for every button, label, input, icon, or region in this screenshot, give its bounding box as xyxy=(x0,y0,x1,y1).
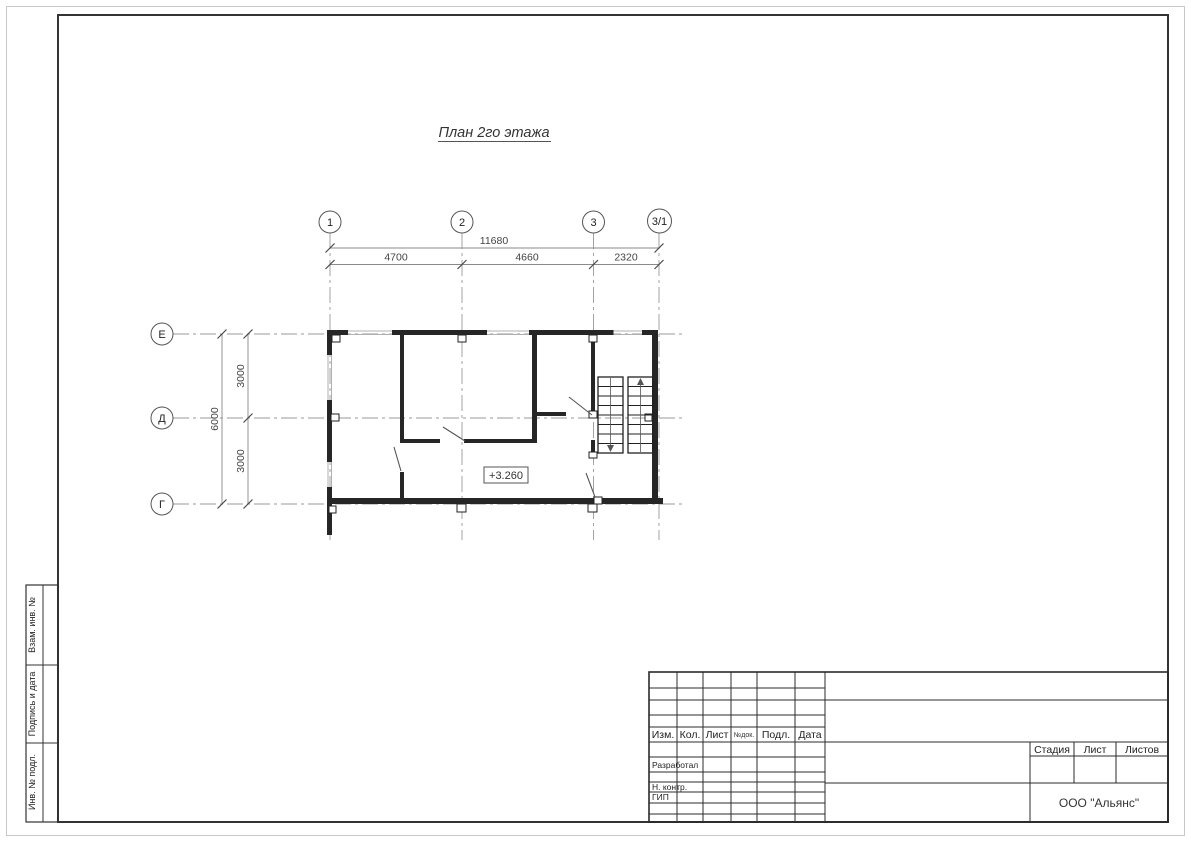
tb-header-ndok: №док. xyxy=(734,732,755,739)
outer-border xyxy=(7,7,1185,836)
tb-role-gip: ГИП xyxy=(652,792,669,802)
wall-interior-vertical xyxy=(400,335,404,443)
inner-frame xyxy=(58,15,1168,822)
dimensions-horizontal: 11680 4700 4660 2320 xyxy=(326,235,664,269)
tick xyxy=(331,414,339,421)
tb-sheets-label: Листов xyxy=(1125,744,1160,756)
drawing-sheet: План 2го этажа 1 2 3 3/1 Е Д Г 11680 xyxy=(0,0,1191,842)
tb-header-izm: Изм. xyxy=(652,729,675,741)
wall-left-seg xyxy=(327,330,332,355)
tick xyxy=(457,504,466,512)
sheet-frame xyxy=(7,7,1185,836)
tb-header-kol: Кол. xyxy=(680,729,701,741)
dim-span-1-2: 4700 xyxy=(384,252,408,264)
axis-label-2: 2 xyxy=(459,217,465,229)
dim-vspan-D-G: 3000 xyxy=(235,449,247,473)
wall-interior-vertical xyxy=(532,335,537,443)
axis-label-3: 3 xyxy=(590,217,596,229)
drawing-canvas: План 2го этажа 1 2 3 3/1 Е Д Г 11680 xyxy=(0,0,1191,842)
tb-header-data: Дата xyxy=(798,729,821,741)
dim-total-width: 11680 xyxy=(480,235,509,247)
staircase xyxy=(598,377,653,453)
tick xyxy=(332,335,340,342)
stair-direction-arrow-up xyxy=(637,378,644,385)
dim-total-height: 6000 xyxy=(209,407,221,431)
tb-role-nkontr: Н. контр. xyxy=(652,782,687,792)
drawing-title-text: План 2го этажа xyxy=(438,125,549,141)
tb-stage-label: Стадия xyxy=(1034,744,1070,756)
tb-header-podl: Подл. xyxy=(762,729,790,741)
wall-partition-stub xyxy=(400,472,404,499)
tick xyxy=(588,504,597,512)
tb-sheet-label: Лист xyxy=(1084,744,1107,756)
axis-label-3-1: 3/1 xyxy=(652,216,667,228)
tick xyxy=(589,452,597,458)
axis-label-D: Д xyxy=(158,413,166,425)
tb-role-razrabotal: Разработал xyxy=(652,760,698,770)
door-hinge-tick xyxy=(594,497,602,504)
stair-direction-arrow-down xyxy=(607,445,614,452)
wall-interior-stub xyxy=(537,412,566,416)
stair-treads xyxy=(598,387,653,444)
door-hinge-tick xyxy=(589,411,597,418)
door-leaf xyxy=(394,447,401,471)
title-block: Изм. Кол. Лист №док. Подл. Дата Разработ… xyxy=(649,672,1168,822)
axis-label-G: Г xyxy=(159,499,165,511)
axis-label-1: 1 xyxy=(327,217,333,229)
dim-vspan-E-D: 3000 xyxy=(235,364,247,388)
dim-span-3-31: 2320 xyxy=(614,252,638,264)
axis-label-E: Е xyxy=(158,329,165,341)
wall-bottom xyxy=(327,498,663,504)
dimensions-vertical: 6000 3000 3000 xyxy=(209,330,253,509)
wall-interior-horizontal xyxy=(464,439,537,443)
stamp-label-inv: Инв. № подл. xyxy=(27,754,37,810)
elevation-marker: +3.260 xyxy=(484,467,528,483)
wall-left-seg xyxy=(327,400,332,462)
tb-header-list: Лист xyxy=(706,729,729,741)
door-leaf xyxy=(569,397,592,415)
wall-top-seg xyxy=(529,330,614,335)
dim-span-2-3: 4660 xyxy=(515,252,539,264)
stamp-column: Взам. инв. № Подпись и дата Инв. № подл. xyxy=(26,585,58,822)
wall-top-seg xyxy=(392,330,487,335)
wall-stairwell xyxy=(591,335,595,417)
stamp-label-vzam: Взам. инв. № xyxy=(27,597,37,653)
elevation-value: +3.260 xyxy=(489,470,523,482)
tick xyxy=(589,335,597,342)
tb-company: ООО "Альянс" xyxy=(1059,796,1139,810)
wall-interior-horizontal xyxy=(402,439,440,443)
drawing-title: План 2го этажа xyxy=(438,125,551,142)
tick xyxy=(458,335,466,342)
tick xyxy=(329,506,336,513)
stamp-label-podpis: Подпись и дата xyxy=(27,672,37,737)
